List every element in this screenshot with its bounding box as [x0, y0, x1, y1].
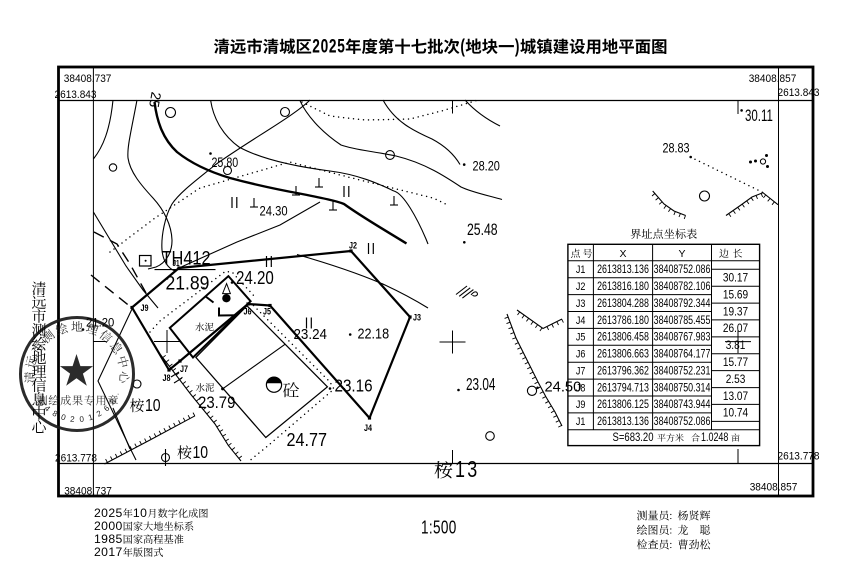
- svg-text:10: 10: [133, 506, 147, 520]
- svg-text:38408.857: 38408.857: [749, 73, 797, 86]
- svg-text:10: 10: [193, 442, 209, 462]
- svg-text:X: X: [619, 248, 626, 260]
- svg-text:38408743.944: 38408743.944: [654, 398, 711, 412]
- svg-text:25: 25: [146, 91, 164, 109]
- svg-text:J9: J9: [141, 303, 149, 313]
- svg-text:1:500: 1:500: [421, 517, 457, 538]
- svg-text:J2: J2: [576, 281, 586, 293]
- svg-text:2.53: 2.53: [726, 373, 746, 386]
- svg-text:J1: J1: [576, 264, 586, 276]
- svg-text:J2: J2: [349, 241, 357, 251]
- svg-text:38408752.231: 38408752.231: [654, 364, 711, 378]
- svg-text:J4: J4: [576, 315, 586, 327]
- svg-text:22.18: 22.18: [358, 326, 390, 342]
- svg-text:2613806.458: 2613806.458: [597, 330, 649, 344]
- svg-text:2: 2: [329, 35, 337, 57]
- svg-text:25.80: 25.80: [212, 155, 239, 171]
- svg-text:38408.857: 38408.857: [750, 481, 798, 494]
- svg-text:J3: J3: [576, 298, 586, 310]
- svg-text:10.74: 10.74: [723, 407, 748, 420]
- svg-text:0: 0: [321, 35, 329, 57]
- svg-text:J9: J9: [576, 399, 586, 411]
- svg-text:15.77: 15.77: [723, 356, 748, 369]
- svg-text:J1: J1: [173, 258, 180, 268]
- svg-text:38408752.086: 38408752.086: [654, 415, 711, 429]
- svg-text:J1: J1: [576, 416, 586, 428]
- svg-text:J7: J7: [180, 364, 188, 374]
- svg-text:2613.843: 2613.843: [778, 87, 820, 100]
- svg-text:24.77: 24.77: [287, 429, 328, 450]
- svg-text:2017: 2017: [94, 545, 123, 559]
- svg-text:30.11: 30.11: [745, 106, 773, 124]
- svg-text:23.04: 23.04: [466, 375, 495, 395]
- svg-text:Y: Y: [678, 248, 685, 260]
- svg-text:21.89: 21.89: [166, 272, 210, 294]
- svg-text:23.79: 23.79: [198, 394, 236, 412]
- svg-text:J8: J8: [163, 373, 171, 383]
- svg-text:38408752.086: 38408752.086: [654, 263, 711, 277]
- svg-text:38408.737: 38408.737: [64, 73, 112, 86]
- svg-text:13.07: 13.07: [723, 390, 748, 403]
- svg-text:1.0248: 1.0248: [701, 432, 729, 444]
- svg-text:30.17: 30.17: [723, 272, 748, 285]
- svg-text:2613806.663: 2613806.663: [597, 347, 649, 361]
- svg-text:19.37: 19.37: [723, 305, 748, 318]
- svg-text:J3: J3: [413, 313, 421, 323]
- svg-text:1985: 1985: [94, 532, 123, 546]
- svg-text:10: 10: [145, 395, 161, 415]
- svg-text:2025: 2025: [94, 506, 123, 520]
- svg-text:2613.778: 2613.778: [778, 450, 820, 463]
- svg-text:J6: J6: [576, 349, 586, 361]
- svg-text:24.30: 24.30: [260, 203, 288, 218]
- svg-text:26.07: 26.07: [723, 322, 748, 335]
- svg-text:25.48: 25.48: [467, 221, 498, 239]
- svg-text:23.16: 23.16: [335, 377, 373, 396]
- svg-text:28.20: 28.20: [473, 158, 500, 173]
- svg-text:2613.843: 2613.843: [55, 89, 97, 102]
- svg-text:2000: 2000: [94, 519, 123, 533]
- svg-text:J5: J5: [576, 332, 586, 344]
- svg-text:5: 5: [337, 35, 345, 57]
- svg-text:13: 13: [455, 457, 480, 483]
- svg-text:38408750.314: 38408750.314: [654, 381, 711, 395]
- svg-text:TH412: TH412: [162, 247, 211, 269]
- svg-text:(: (: [460, 35, 465, 57]
- svg-text:2613813.136: 2613813.136: [597, 415, 649, 429]
- svg-text:): ): [515, 35, 520, 57]
- svg-text:38408767.983: 38408767.983: [654, 330, 711, 344]
- svg-text:2613813.136: 2613813.136: [597, 263, 649, 277]
- svg-text:38408782.106: 38408782.106: [654, 280, 711, 294]
- svg-text:28.83: 28.83: [663, 140, 690, 156]
- svg-text:2613816.180: 2613816.180: [597, 280, 649, 294]
- svg-text:2613.778: 2613.778: [55, 452, 97, 465]
- svg-text:J5: J5: [263, 307, 271, 317]
- svg-text:2613806.125: 2613806.125: [597, 398, 649, 412]
- svg-text:38408785.455: 38408785.455: [654, 314, 711, 328]
- svg-text:2613804.288: 2613804.288: [597, 297, 649, 311]
- svg-text:J7: J7: [576, 366, 586, 378]
- svg-text:23.24: 23.24: [294, 325, 328, 342]
- svg-text:38408792.344: 38408792.344: [654, 297, 711, 311]
- svg-text:15.69: 15.69: [723, 289, 748, 302]
- svg-text:24.50: 24.50: [545, 380, 582, 396]
- svg-text:21.20: 21.20: [86, 315, 115, 330]
- svg-text:38408.737: 38408.737: [64, 485, 112, 498]
- svg-text:2613796.362: 2613796.362: [597, 364, 649, 378]
- svg-text:2: 2: [312, 35, 320, 57]
- svg-text:2613786.180: 2613786.180: [597, 314, 649, 328]
- svg-text:J4: J4: [364, 423, 372, 433]
- svg-text:S=683.20: S=683.20: [613, 431, 654, 444]
- svg-text:2613794.713: 2613794.713: [597, 381, 649, 395]
- svg-text:24.20: 24.20: [236, 268, 274, 289]
- svg-text:38408764.177: 38408764.177: [654, 347, 711, 361]
